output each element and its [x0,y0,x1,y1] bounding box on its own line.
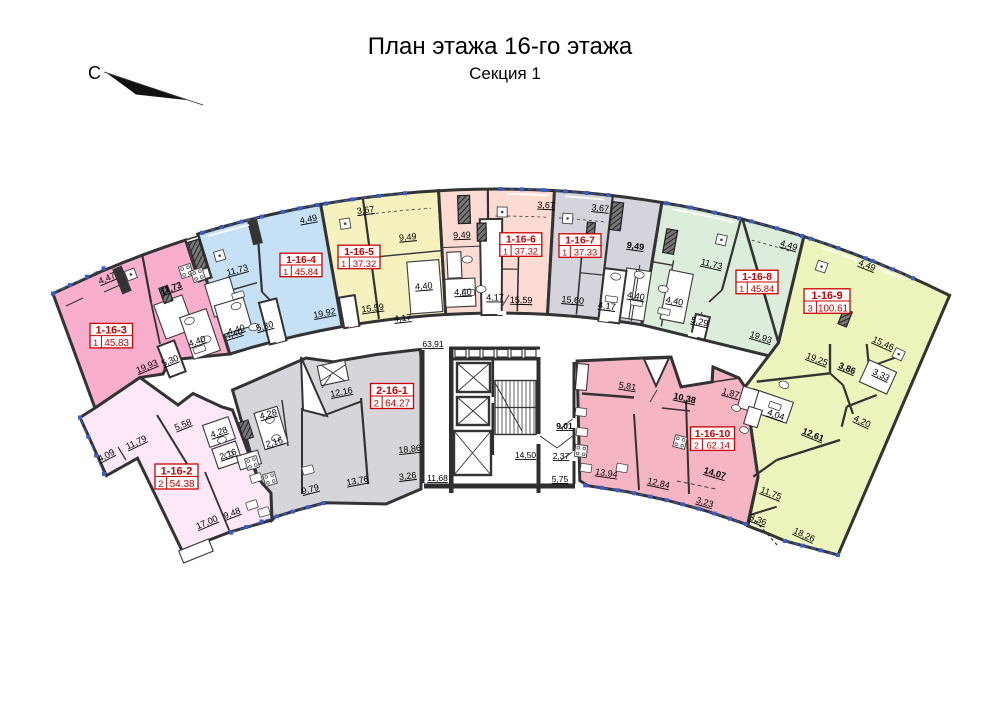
svg-text:1-16-6: 1-16-6 [506,235,536,246]
svg-text:4,17: 4,17 [486,292,504,302]
svg-text:14,50: 14,50 [515,450,537,460]
svg-text:4,40: 4,40 [454,287,472,298]
svg-text:3,67: 3,67 [537,200,555,211]
svg-text:1: 1 [93,338,98,348]
svg-text:Секция 1: Секция 1 [469,64,541,83]
svg-text:2,37: 2,37 [553,451,570,461]
svg-text:11,68: 11,68 [427,473,448,483]
svg-text:1-16-8: 1-16-8 [742,272,772,283]
svg-text:100.61: 100.61 [818,303,848,314]
svg-text:45.84: 45.84 [295,266,318,277]
svg-text:2: 2 [694,441,699,451]
svg-text:64.27: 64.27 [385,399,410,410]
svg-text:4,40: 4,40 [415,280,433,291]
svg-text:1: 1 [739,284,744,294]
svg-text:45.83: 45.83 [104,338,129,349]
svg-text:9,49: 9,49 [399,231,417,243]
svg-text:1: 1 [341,259,346,269]
svg-text:37.33: 37.33 [574,246,597,257]
svg-text:2-16-1: 2-16-1 [376,385,408,397]
svg-text:45.84: 45.84 [751,283,774,294]
svg-text:2: 2 [374,399,379,409]
svg-text:37.32: 37.32 [353,258,376,269]
svg-text:1-16-10: 1-16-10 [695,429,731,440]
svg-text:2: 2 [158,479,163,489]
svg-text:1-16-2: 1-16-2 [161,466,193,478]
svg-text:3: 3 [808,303,813,313]
svg-text:9,49: 9,49 [453,230,471,241]
svg-text:4,17: 4,17 [393,312,411,324]
svg-text:1: 1 [283,267,288,277]
svg-text:1-16-3: 1-16-3 [96,325,127,337]
svg-text:9,01: 9,01 [556,421,573,431]
svg-text:3,26: 3,26 [398,470,417,482]
svg-text:54.38: 54.38 [170,479,195,490]
svg-text:15,59: 15,59 [510,295,533,306]
svg-text:1: 1 [503,247,508,257]
svg-text:С: С [88,63,101,83]
svg-text:1-16-7: 1-16-7 [565,236,595,247]
svg-text:3,67: 3,67 [591,202,609,214]
svg-text:1-16-9: 1-16-9 [811,290,842,302]
svg-text:5,75: 5,75 [552,474,569,484]
svg-text:1-16-5: 1-16-5 [344,247,374,258]
svg-text:37.32: 37.32 [515,246,538,257]
svg-text:1-16-4: 1-16-4 [286,255,316,266]
svg-text:63,91: 63,91 [422,339,444,349]
svg-text:62.14: 62.14 [706,440,729,451]
svg-text:15,60: 15,60 [561,294,584,306]
svg-text:4,17: 4,17 [598,300,617,312]
svg-text:1: 1 [562,247,567,257]
svg-text:План этажа 16-го этажа: План этажа 16-го этажа [368,33,633,60]
